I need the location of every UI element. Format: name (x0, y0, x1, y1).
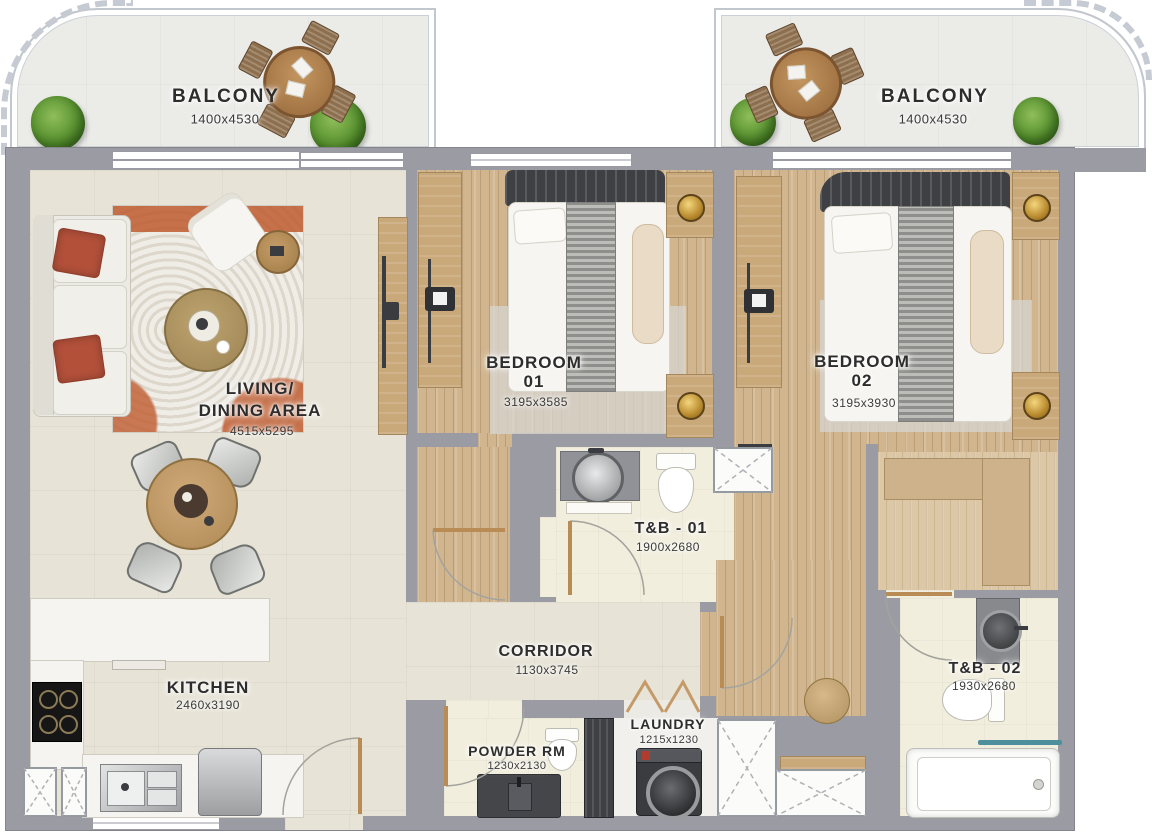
room-label-balcony-right: BALCONY (881, 86, 989, 108)
room-dims: 3195x3930 (832, 396, 896, 410)
room-dims: 1130x3745 (516, 663, 579, 677)
room-dims: 4515x5295 (230, 424, 294, 438)
bifold-door (627, 682, 699, 712)
room-label-bedroom1: 01 (524, 372, 545, 392)
room-label-tb1: T&B - 01 (635, 520, 708, 538)
shaft-hatch (776, 770, 866, 816)
room-dims: 1400x4530 (899, 112, 968, 127)
room-label-bedroom1: BEDROOM (486, 353, 582, 373)
room-dims: 1215x1230 (640, 734, 699, 746)
room-dims: 1400x4530 (191, 112, 260, 127)
room-label-kitchen: KITCHEN (167, 678, 250, 698)
room-dims: 2460x3190 (176, 698, 240, 712)
room-label-powder: POWDER RM (468, 743, 566, 759)
room-label-living: DINING AREA (199, 401, 322, 421)
room-label-bedroom2: 02 (852, 371, 873, 391)
shaft-hatch (718, 720, 776, 816)
cabinet-hatch (62, 768, 86, 816)
room-dims: 1900x2680 (636, 540, 700, 554)
room-dims: 3195x3585 (504, 395, 568, 409)
doors-and-hatches-layer (0, 0, 1152, 833)
room-label-corridor: CORRIDOR (498, 643, 593, 661)
shaft-hatch (714, 448, 772, 492)
room-dims: 1230x2130 (488, 760, 547, 772)
room-label-laundry: LAUNDRY (631, 716, 706, 732)
room-label-living: LIVING/ (226, 379, 294, 399)
cabinet-hatch (24, 768, 56, 816)
room-label-bedroom2: BEDROOM (814, 352, 910, 372)
room-dims: 1930x2680 (952, 679, 1016, 693)
floor-plan: BALCONY 1400x4530 BALCONY 1400x4530 LIVI… (0, 0, 1152, 833)
room-label-balcony-left: BALCONY (172, 86, 280, 108)
room-label-tb2: T&B - 02 (949, 660, 1022, 678)
